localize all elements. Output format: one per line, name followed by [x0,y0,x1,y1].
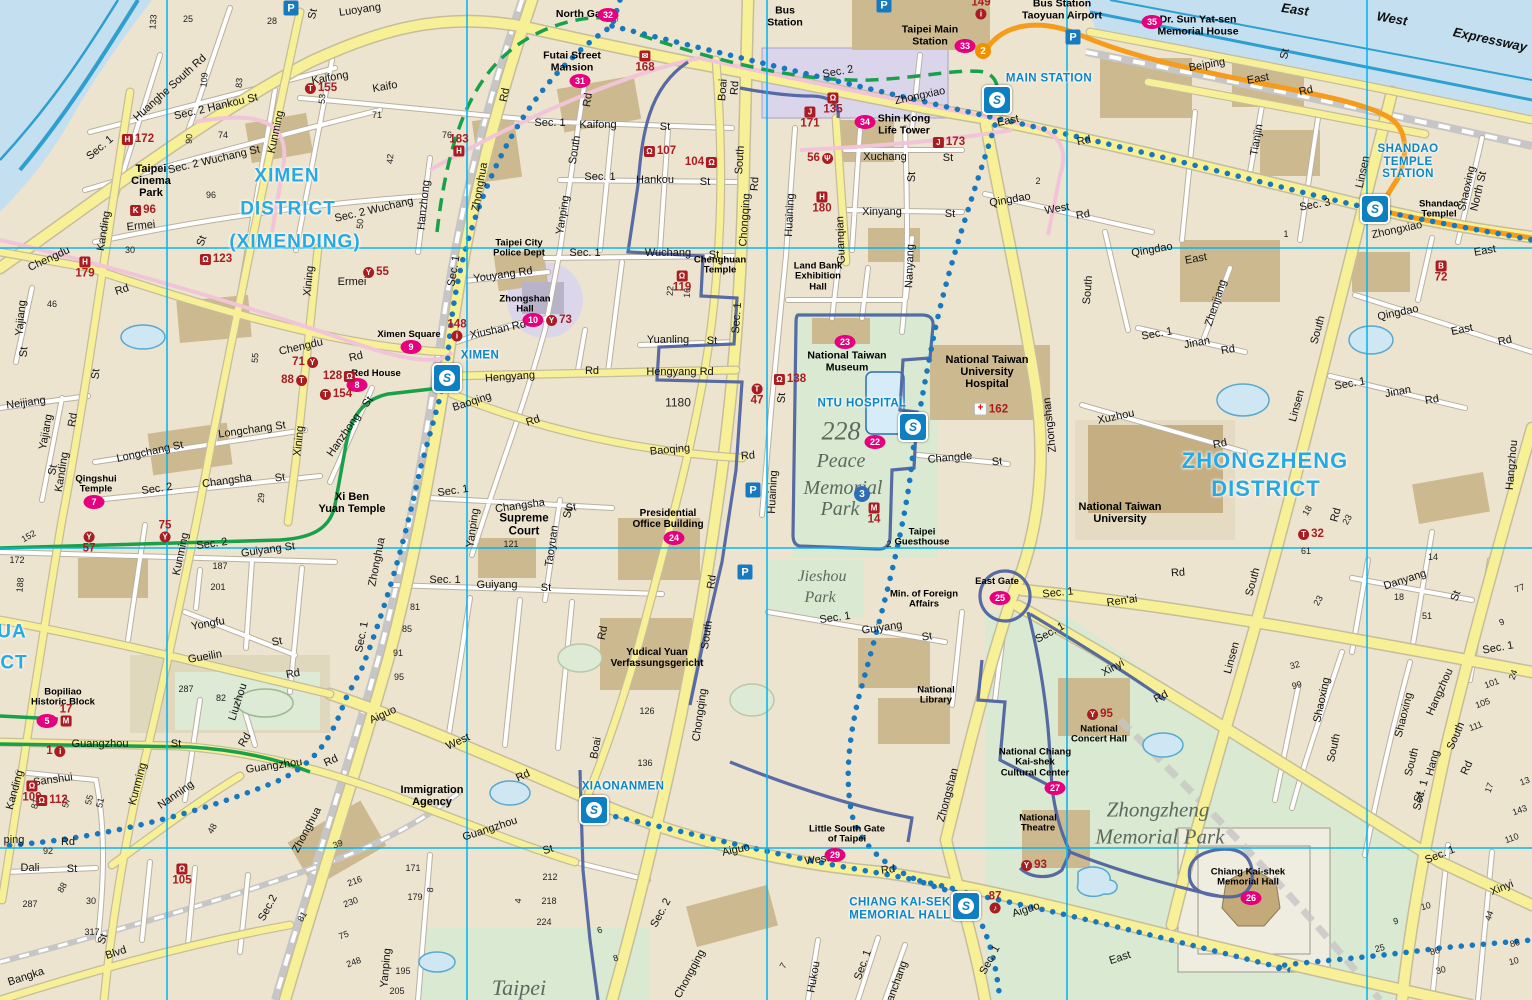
poi-number: 96 [143,204,156,216]
map-label: St [943,152,953,164]
map-label: 96 [206,191,216,201]
poi-ref-162: +162 [974,403,1008,416]
map-label: 133 [148,14,159,30]
drink-icon: Y [307,357,318,368]
metro-icon: M [868,503,879,514]
map-label: Longchang St [116,439,185,465]
map-label: Sec. 2 [822,63,855,80]
map-label: 121 [503,540,518,550]
map-label: St [360,394,376,409]
map-label: Guanqian [834,216,848,264]
map-label: Chongqing [690,688,709,742]
hotel-icon: H [80,257,91,268]
poi-number: 149 [971,0,990,9]
map-label: Ximen Square [377,330,440,340]
poi-ref-179: H179 [75,257,94,280]
map-label: Taipei Guesthouse [895,528,950,549]
map-label: Changsha [201,472,252,491]
map-label: 77 [1514,583,1527,596]
map-label: Rd [1076,134,1092,149]
map-label: Changsha [494,497,545,516]
map-label: 10 [1420,901,1432,913]
poi-ref-128: 128Ω [323,370,355,382]
map-label: 55 [84,794,96,806]
map-label: 136 [637,759,652,769]
map-label: 29 [257,493,268,504]
map-label: Rd [524,413,541,429]
map-label: St [1449,589,1464,603]
map-label: Rd [236,731,254,749]
poi-ref-95: Y95 [1087,708,1113,720]
lock-icon: Ω [177,864,188,875]
map-label: Guangzhou [245,756,303,776]
map-label: Chenghuan Temple [694,256,746,277]
map-label: East Gate [975,577,1019,587]
poi-ref-14: M14 [868,503,881,526]
map-label: Kanding [53,451,71,493]
map-label: Xining [291,425,306,457]
map-label: Rd [1212,437,1228,452]
map-label: South [1243,567,1262,598]
map-label: Sec. 1 [569,247,600,259]
map-label: 86 [1429,946,1441,958]
map-label: 18 [1394,593,1404,603]
drink-icon: Y [546,315,557,326]
poi-ref-71: 71Y [292,356,318,368]
district-label: CT [0,654,27,675]
map-label: Sec. 2 Wuchang [333,195,414,225]
map-label: Yuanling [647,334,689,346]
map-label: Hangzhou [1504,439,1520,490]
poi-ref-168: ✉168 [635,51,654,74]
map-label: Youyang Rd [473,265,534,285]
map-label: 143 [1511,804,1529,818]
poi-number: 171 [800,118,819,130]
poi-number: 172 [135,133,154,145]
sight-badge-35: 35 [1142,15,1163,29]
map-label: 187 [212,562,227,572]
map-label: Chongqing [737,193,753,247]
map-label: Rd [1171,566,1186,579]
map-label: Rd [285,667,301,681]
map-label: 30 [125,246,135,256]
map-label: Sec. 2 Hankou St [173,91,259,122]
poi-ref-138: Ω138 [774,373,806,385]
poi-number: 56 [807,152,820,164]
map-label: 16 [683,288,694,299]
map-label: 18 [1301,504,1315,518]
map-label: Sec. 1 [730,302,744,334]
map-label: Sec. 1 [1334,375,1367,392]
poi-number: 17 [60,704,73,716]
map-label: Jieshou [798,568,847,586]
map-label: Beiping [1188,56,1226,74]
poi-ref-149: 149i [971,0,990,20]
metro-station-icon: S [951,891,981,921]
map-label: Rd [348,350,364,365]
map-label: St [541,582,551,594]
map-label: Yudical Yuan Verfassungsgericht [611,647,704,669]
map-label: 13 [1519,776,1532,789]
map-label: 287 [178,685,193,695]
map-label: Sec.2 [256,893,280,924]
sight-badge-9: 9 [401,340,422,354]
map-label: Hang [1424,749,1442,778]
map-label: Nanchang [882,959,911,1000]
map-label: Huanghe South Rd [131,52,209,124]
map-label: Wuchang [645,247,691,259]
poi-ref-123: Ω123 [200,253,232,265]
map-label: Taipei Cinema Park [131,163,171,199]
map-label: National Taiwan Museum [807,350,886,373]
map-label: St [561,507,574,519]
map-label: 88 [56,881,70,895]
map-label: Sec. 1 [1141,325,1174,342]
map-label: St [921,630,933,643]
map-label: Aiguo [368,704,399,727]
map-label: St [274,471,286,484]
metro-logo: S [586,802,602,818]
map-label: Rd [705,574,719,590]
poi-ref-1: 1i [46,745,65,757]
map-label: National Library [917,686,954,707]
map-label: Guangzhou [461,814,519,843]
map-label: 224 [536,918,551,928]
poi-number: 73 [559,314,572,326]
map-label: Shin Kong Life Tower [878,113,931,136]
poi-ref-109: Ω109 [22,781,41,804]
map-label: Supreme Court [499,512,548,537]
poi-number: 109 [22,792,41,804]
map-label: South [567,135,583,165]
map-canvas: XIMENDISTRICT(XIMENDING)ZHONGZHENGDISTRI… [0,0,1532,1000]
drink-icon: Y [159,532,170,543]
map-label: Sec. 1 [1482,639,1515,656]
map-label: Expressway [1452,25,1529,55]
station-label: MAIN STATION [1006,73,1092,86]
map-label: 105 [1474,697,1492,711]
map-label: Hangzhou [1424,667,1455,718]
map-label: Sec. 1 [84,133,116,162]
map-label: Presidential Office Building [632,508,703,530]
map-label: Guiyang [477,579,518,591]
map-label: Nanning [156,778,197,811]
map-label: 10 [1508,956,1520,968]
phone-icon: T [751,384,762,395]
map-label: 42 [386,154,397,165]
map-label: Hanzhong [415,179,432,230]
sight-badge-27: 27 [1045,781,1066,795]
map-label: Bus Station Taoyuan Airport [1022,0,1102,22]
map-label: East [1108,949,1133,967]
map-label: 2 [1035,177,1040,187]
poi-number: 55 [376,266,389,278]
map-label: Jinan [1384,384,1412,400]
map-label: Huaining [783,193,797,237]
station-label: XIMEN [461,350,499,363]
map-label: 39 [332,839,345,852]
map-label: Rd [596,625,610,641]
map-label: St [707,335,717,347]
map-label: East [1246,71,1270,87]
map-label: St [90,368,103,379]
parking-icon: P [738,565,753,580]
map-label: Park [804,589,835,607]
map-label: Qingdao [1376,303,1419,323]
map-label: Kunming [266,110,287,155]
map-label: ping [4,834,25,846]
map-label: Rd [1298,84,1314,99]
metro-logo: S [905,419,921,435]
map-label: Zhonghua [366,537,387,588]
map-label: West [1044,201,1071,217]
map-label: South [1081,275,1096,305]
hostel-icon: J [933,137,944,148]
sight-badge-5: 5 [37,714,58,728]
map-label: 205 [389,987,404,997]
map-label: Zhongxiao [894,85,947,108]
lock-icon: Ω [27,781,38,792]
bus-icon: B [1435,261,1446,272]
map-label: 195 [395,967,410,977]
district-label: XIMEN [254,167,319,188]
map-label: 317 [84,928,99,938]
hostel-icon: J [805,107,816,118]
map-label: National Taiwan University [1079,501,1162,525]
map-label: East [1184,251,1208,267]
map-label: 126 [639,707,654,717]
map-label: 55 [251,353,262,364]
metro-line-badge-2: 2 [975,43,991,59]
sight-badge-26: 26 [1241,891,1262,905]
map-label: Little South Gate of Taipei [809,825,885,846]
metro-station-icon: S [898,412,928,442]
metro-icon: M [60,716,71,727]
map-label: Gueilin [187,648,223,666]
map-label: St [18,346,31,357]
map-label: Rd [1459,759,1476,777]
district-label: (XIMENDING) [229,233,360,254]
poi-ref-107: Ω107 [644,145,676,157]
drink-icon: Y [363,267,374,278]
poi-number: 95 [1100,708,1113,720]
map-label: Neijiang [5,394,46,412]
map-label: Sec. 1 [437,483,470,499]
map-label: Sec. 1 [1033,620,1066,645]
map-label: Baoqing [451,390,493,414]
map-label: Rd [61,836,75,848]
map-label: Huaining [766,470,780,514]
map-label: Immigration Agency [401,784,464,808]
map-label: Linsen [1287,389,1307,423]
map-label: Sec. 1 [429,574,460,586]
map-label: Kunming [171,532,192,577]
drink-icon: Y [1087,709,1098,720]
map-label: Sec. 1 [584,171,615,183]
poi-ref-17: 17M [60,704,73,727]
map-label: Rd [880,863,896,877]
map-label: 82 [216,694,226,704]
map-label: Yanping [464,508,481,549]
map-label: Xinyi [1100,657,1127,679]
map-label: Sec. 1 [852,948,874,981]
map-label: 44 [1484,910,1497,923]
map-label: South [699,620,715,650]
map-label: 46 [47,300,57,310]
sight-badge-32: 32 [598,8,619,22]
map-label: 25 [183,15,193,25]
parking-icon: P [1066,30,1081,45]
metro-logo: S [958,898,974,914]
map-label: Yajiang [13,300,28,337]
poi-number: 1 [46,745,52,757]
map-label: Xining [301,265,316,297]
map-label: Rd [1497,334,1513,349]
map-label: Aiguo [721,841,751,859]
hotel-icon: H [122,134,133,145]
poi-number: 183 [449,134,468,146]
poi-ref-154: T154 [320,388,352,400]
map-label: Xinyang [862,206,902,218]
map-label: National Taiwan University Hospital [946,354,1029,390]
map-label: Kaifong [311,69,350,87]
map-label: Rd [585,365,599,377]
map-label: 1180 [665,396,691,409]
map-label: 218 [541,897,556,907]
map-label: Qingdao [1130,240,1173,259]
map-label: 110 [1504,832,1521,846]
map-label: 111 [1468,720,1484,734]
poi-ref-47: T47 [751,384,764,407]
poi-number: 75 [159,520,172,532]
map-label: West [444,731,472,752]
map-label: 4 [514,898,524,904]
map-label: St [67,863,77,875]
map-label: 99 [1291,680,1303,692]
mail-icon: ✉ [640,51,651,62]
district-label: ZHONGZHENG [1182,449,1348,473]
map-label: Zhonghua [290,805,324,854]
map-label: Longchang St [218,419,287,440]
map-label: Sec. 3 [1299,196,1332,213]
poi-number: 87 [989,891,1002,903]
station-label: XIAONANMEN [582,781,665,794]
map-label: St [906,172,918,183]
poi-ref-135: Ω135 [823,93,842,116]
map-label: Boai [716,79,730,102]
map-label: Qingshui Temple [75,475,116,496]
poi-ref-56: 56Ψ [807,152,833,164]
map-label: 248 [345,956,363,970]
map-label: Sec. 1 [1411,778,1431,811]
map-label: Liuzhou [226,682,249,722]
poi-ref-55: Y55 [363,266,389,278]
poi-number: 155 [318,82,337,94]
poi-number: 119 [673,282,692,294]
map-label: 76 [442,131,452,141]
poi-ref-112: Ω112 [36,794,68,806]
metro-logo: S [439,370,455,386]
metro-logo: S [989,92,1005,108]
map-label: Sec. 1 [445,255,462,288]
map-label: West [1376,9,1409,28]
map-label: 75 [338,930,351,943]
map-label: Kunming [127,761,150,806]
poi-ref-183: 183H [449,134,468,157]
poi-number: 14 [868,514,881,526]
map-label: 152 [20,529,38,545]
music-icon: ♪ [989,903,1000,914]
map-label: Guiyang [861,619,903,637]
map-label: Chengdu [278,336,324,358]
map-label: 172 [9,556,24,566]
map-label: 17 [1484,782,1497,795]
map-label: Chengdu [26,244,72,274]
map-label: Yajiang [37,413,55,450]
map-label: Boai [588,736,604,760]
map-label: Dali [21,862,40,874]
map-label: National Theatre [1019,814,1056,835]
map-label: Guangzhou [72,738,129,750]
metro-line-badge-3: 3 [854,486,870,502]
map-label: Zhongshan [1041,397,1059,453]
map-label: St [991,456,1002,469]
map-label: 28 [267,17,277,27]
map-label: St [171,738,181,750]
lock-icon: Ω [677,271,688,282]
poi-ref-32: T32 [1298,528,1324,540]
map-label: 81 [30,798,42,810]
poi-number: 148 [447,319,466,331]
map-label: 287 [22,900,37,910]
map-label: Sec. 2 [648,896,673,929]
poi-number: 128 [323,370,342,382]
map-label: Bus Station [767,5,803,28]
poi-number: 135 [823,104,842,116]
map-label: 50 [356,219,367,230]
map-label: 9 [1392,917,1399,928]
map-label: Taoyuan [543,525,561,568]
poi-number: 71 [292,356,305,368]
poi-number: 179 [75,268,94,280]
map-label: South [1445,720,1468,751]
map-label: Rd [728,81,741,96]
poi-ref-171: J171 [800,107,819,130]
map-label: Danyang [1382,567,1428,592]
map-label: Xi Ben Yuan Temple [318,491,385,515]
lock-icon: Ω [706,157,717,168]
map-label: Rd [1424,393,1440,407]
poi-number: 180 [812,203,831,215]
poi-ref-180: H180 [812,192,831,215]
sight-badge-29: 29 [825,848,846,862]
lock-icon: Ω [36,795,47,806]
lock-icon: Ω [200,254,211,265]
station-label: CHIANG KAI-SEK MEMORIAL HALL [849,896,950,921]
map-label: 2 [886,540,891,550]
map-label: 171 [405,864,420,874]
map-label: 23 [1312,594,1326,608]
map-label: West [804,852,830,867]
map-label: South [733,145,747,175]
map-label: Hankou [636,174,674,186]
poi-number: 57 [83,543,96,555]
map-label: East [996,113,1020,129]
map-label: Rd [66,412,80,428]
map-label: Shandao Templel [1419,200,1459,221]
phone-icon: T [296,375,307,386]
metro-station-icon: S [982,85,1012,115]
